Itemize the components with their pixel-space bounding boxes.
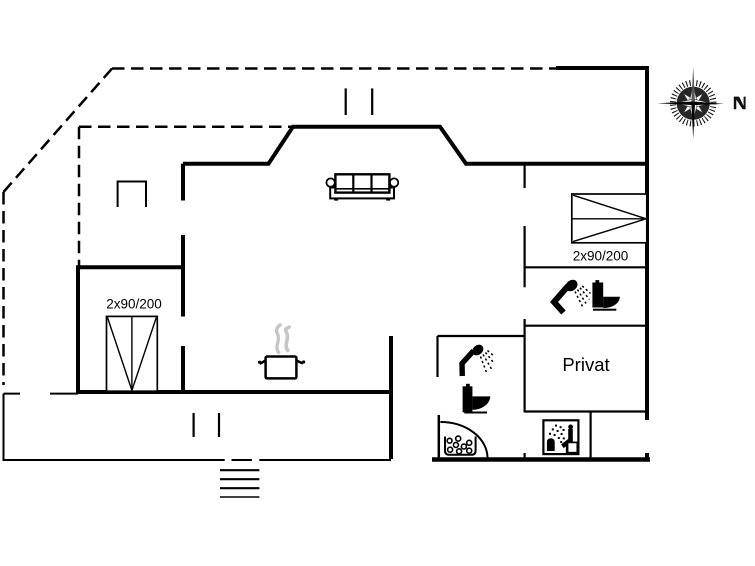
svg-text:2x90/200: 2x90/200 [106,297,162,312]
svg-text:2x90/200: 2x90/200 [573,249,629,264]
svg-text:Privat: Privat [562,354,609,375]
